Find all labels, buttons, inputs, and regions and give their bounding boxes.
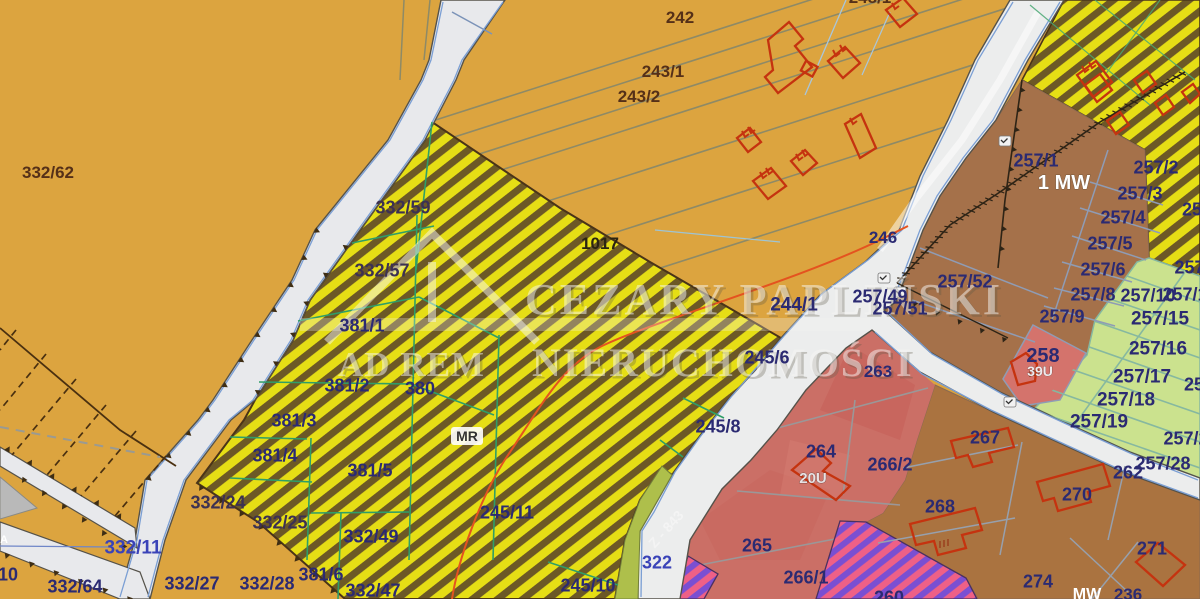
svg-text:10: 10 <box>0 564 18 584</box>
svg-text:257/4: 257/4 <box>1100 207 1145 227</box>
svg-text:MR: MR <box>456 428 478 444</box>
svg-text:267: 267 <box>970 427 1000 447</box>
svg-text:236: 236 <box>1114 585 1142 599</box>
svg-text:263: 263 <box>864 362 892 381</box>
svg-text:257/5: 257/5 <box>1087 233 1132 253</box>
svg-text:A: A <box>0 534 8 546</box>
svg-text:332/64: 332/64 <box>47 576 102 596</box>
svg-text:380: 380 <box>405 378 435 398</box>
svg-text:39U: 39U <box>1027 363 1053 379</box>
svg-text:260: 260 <box>874 587 904 599</box>
svg-text:244/1: 244/1 <box>770 295 818 316</box>
svg-text:242: 242 <box>666 8 694 27</box>
svg-text:257/: 257/ <box>1174 257 1200 277</box>
svg-text:381/4: 381/4 <box>252 445 297 465</box>
svg-text:257/18: 257/18 <box>1097 390 1155 411</box>
svg-text:266/2: 266/2 <box>867 454 912 474</box>
svg-text:381/3: 381/3 <box>271 410 316 430</box>
svg-text:257/14: 257/14 <box>1162 284 1200 304</box>
svg-text:332/57: 332/57 <box>354 260 409 280</box>
svg-text:332/11: 332/11 <box>104 538 161 559</box>
svg-text:257/28: 257/28 <box>1135 453 1190 473</box>
svg-text:CEZARY PAPLIŃSKI: CEZARY PAPLIŃSKI <box>525 275 1003 324</box>
svg-text:257/8: 257/8 <box>1070 284 1115 304</box>
svg-text:332/25: 332/25 <box>252 512 307 532</box>
svg-text:257/1: 257/1 <box>1013 150 1058 170</box>
svg-text:332/28: 332/28 <box>239 573 294 593</box>
svg-text:268: 268 <box>925 496 955 516</box>
svg-text:322: 322 <box>642 552 672 572</box>
svg-text:1017: 1017 <box>581 234 619 253</box>
svg-text:246: 246 <box>869 228 897 247</box>
svg-text:257/17: 257/17 <box>1113 367 1171 388</box>
svg-text:271: 271 <box>1137 538 1167 558</box>
svg-text:20U: 20U <box>799 470 827 487</box>
svg-text:25: 25 <box>1184 374 1200 394</box>
svg-text:332/59: 332/59 <box>375 197 430 217</box>
svg-text:381/2: 381/2 <box>324 375 369 395</box>
svg-text:332/47: 332/47 <box>345 580 400 599</box>
svg-text:25: 25 <box>1182 199 1200 219</box>
svg-text:257/51: 257/51 <box>872 298 927 318</box>
svg-text:1 MW: 1 MW <box>1038 172 1090 194</box>
svg-text:332/49: 332/49 <box>343 526 398 546</box>
svg-text:274: 274 <box>1023 571 1053 591</box>
svg-text:270: 270 <box>1062 484 1092 504</box>
svg-text:245/11: 245/11 <box>480 502 534 522</box>
svg-text:257/2: 257/2 <box>1133 157 1178 177</box>
svg-text:264: 264 <box>806 441 836 461</box>
svg-text:257/15: 257/15 <box>1131 309 1190 330</box>
svg-text:332/27: 332/27 <box>164 573 219 593</box>
svg-text:257/6: 257/6 <box>1080 259 1125 279</box>
svg-text:332/24: 332/24 <box>190 492 245 512</box>
svg-text:257/9: 257/9 <box>1039 306 1084 326</box>
svg-text:243/1: 243/1 <box>642 62 685 81</box>
svg-text:245/8: 245/8 <box>695 416 740 436</box>
svg-text:265: 265 <box>742 535 772 555</box>
svg-text:257/19: 257/19 <box>1070 412 1128 433</box>
svg-text:257/52: 257/52 <box>937 271 992 291</box>
svg-text:381/5: 381/5 <box>347 460 392 480</box>
svg-text:NIERUCHOMOŚCI: NIERUCHOMOŚCI <box>532 340 914 385</box>
svg-text:332/62: 332/62 <box>22 163 74 182</box>
svg-text:245/6: 245/6 <box>744 347 789 367</box>
svg-text:257/16: 257/16 <box>1129 339 1187 360</box>
svg-text:257/3: 257/3 <box>1117 183 1162 203</box>
svg-text:381/6: 381/6 <box>298 564 343 584</box>
svg-text:248/1: 248/1 <box>849 0 892 7</box>
svg-text:381/1: 381/1 <box>339 315 384 335</box>
svg-text:266/1: 266/1 <box>783 567 828 587</box>
svg-text:MW: MW <box>1073 586 1102 599</box>
svg-text:245/10: 245/10 <box>560 575 615 595</box>
svg-text:243/2: 243/2 <box>618 87 661 106</box>
svg-text:257/2: 257/2 <box>1163 428 1200 448</box>
